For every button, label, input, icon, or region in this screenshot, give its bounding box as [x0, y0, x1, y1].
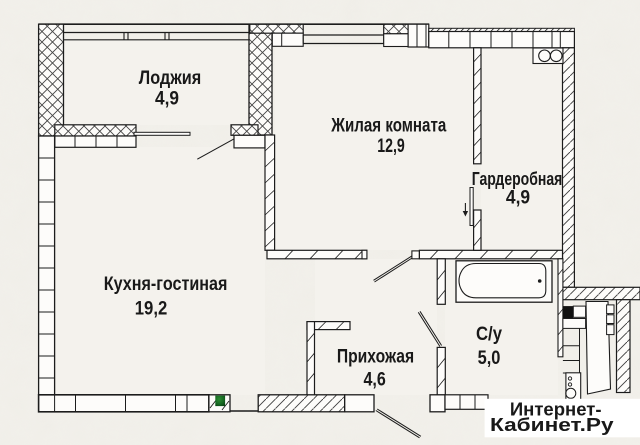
svg-text:19,2: 19,2	[135, 299, 168, 320]
svg-text:12,9: 12,9	[377, 136, 405, 157]
svg-text:Лоджия: Лоджия	[139, 68, 201, 89]
svg-text:Прихожая: Прихожая	[337, 347, 414, 368]
svg-text:5,0: 5,0	[478, 348, 501, 369]
svg-text:Кухня-гостиная: Кухня-гостиная	[104, 274, 228, 295]
svg-text:Гардеробная: Гардеробная	[472, 169, 563, 189]
svg-text:Жилая комната: Жилая комната	[331, 115, 447, 136]
svg-text:4,9: 4,9	[155, 89, 179, 110]
svg-text:Кабинет.Ру: Кабинет.Ру	[490, 414, 614, 435]
svg-text:С/у: С/у	[476, 324, 502, 345]
svg-text:4,9: 4,9	[506, 188, 530, 209]
svg-text:4,6: 4,6	[363, 370, 385, 391]
